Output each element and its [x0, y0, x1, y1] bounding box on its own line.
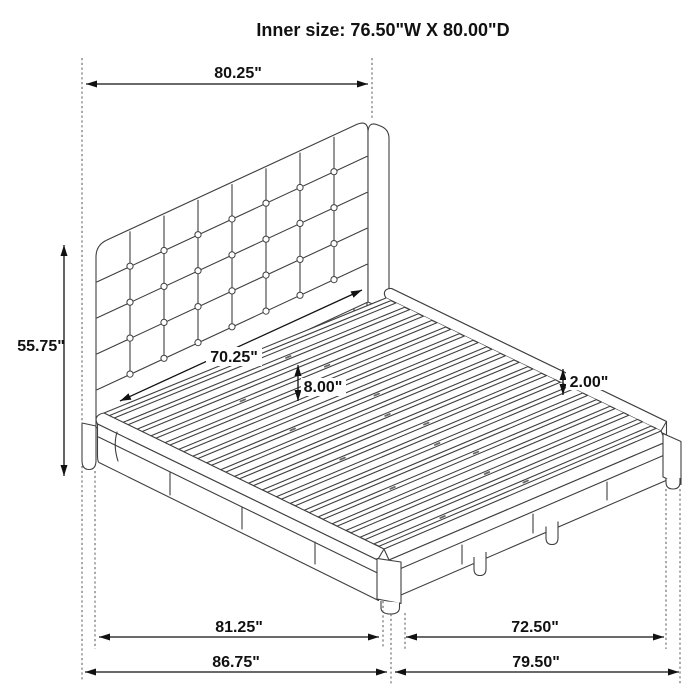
tuft-button: [127, 263, 133, 269]
tuft-button: [229, 324, 235, 330]
dim-base-length-label: 81.25": [215, 619, 263, 636]
dim-base-length: 81.25": [99, 619, 379, 637]
tuft-button: [297, 220, 303, 226]
tuft-button: [161, 355, 167, 361]
tuft-button: [331, 169, 337, 175]
bed-drawing: [82, 123, 681, 614]
bed-dimension-diagram-page: 80.25" 55.75" 70.25" 8.00" 2.00" 81.25" …: [0, 0, 700, 700]
dim-inner-slat-width-label: 70.25": [210, 349, 258, 366]
tuft-button: [297, 292, 303, 298]
right-corner-post: [663, 434, 681, 490]
dim-headboard-width: 80.25": [86, 65, 368, 84]
headboard-side-face: [368, 124, 389, 312]
bed-dimension-diagram: 80.25" 55.75" 70.25" 8.00" 2.00" 81.25" …: [0, 0, 700, 700]
tuft-button: [331, 277, 337, 283]
tuft-button: [161, 319, 167, 325]
tuft-button: [195, 340, 201, 346]
tuft-button: [297, 256, 303, 262]
tuft-button: [127, 299, 133, 305]
dim-overall-length: 86.75": [85, 654, 387, 672]
dim-overall-length-label: 86.75": [212, 654, 260, 671]
tuft-button: [297, 184, 303, 190]
dim-overall-width: 79.50": [395, 654, 679, 672]
tuft-button: [331, 205, 337, 211]
tuft-button: [263, 308, 269, 314]
dim-headboard-width-label: 80.25": [214, 65, 262, 82]
tuft-button: [161, 247, 167, 253]
dim-base-width: 72.50": [406, 619, 664, 637]
tuft-button: [127, 335, 133, 341]
front-corner-post: [377, 559, 401, 615]
tuft-button: [263, 272, 269, 278]
headboard-left-leg: [82, 423, 96, 470]
tuft-button: [263, 200, 269, 206]
tuft-button: [195, 268, 201, 274]
dim-side-rail-height-label: 2.00": [570, 374, 609, 391]
dim-headboard-height-label: 55.75": [17, 338, 65, 355]
dim-headboard-height: 55.75": [17, 245, 65, 476]
dim-overall-width-label: 79.50": [512, 654, 560, 671]
tuft-button: [229, 288, 235, 294]
tuft-button: [263, 236, 269, 242]
tuft-button: [161, 283, 167, 289]
tuft-button: [195, 232, 201, 238]
page-title: Inner size: 76.50"W X 80.00"D: [256, 20, 509, 40]
tuft-button: [127, 371, 133, 377]
tuft-button: [331, 241, 337, 247]
dim-slat-platform-height-label: 8.00": [304, 379, 343, 396]
tuft-button: [195, 304, 201, 310]
tuft-button: [229, 216, 235, 222]
dim-base-width-label: 72.50": [511, 619, 559, 636]
tuft-button: [229, 252, 235, 258]
